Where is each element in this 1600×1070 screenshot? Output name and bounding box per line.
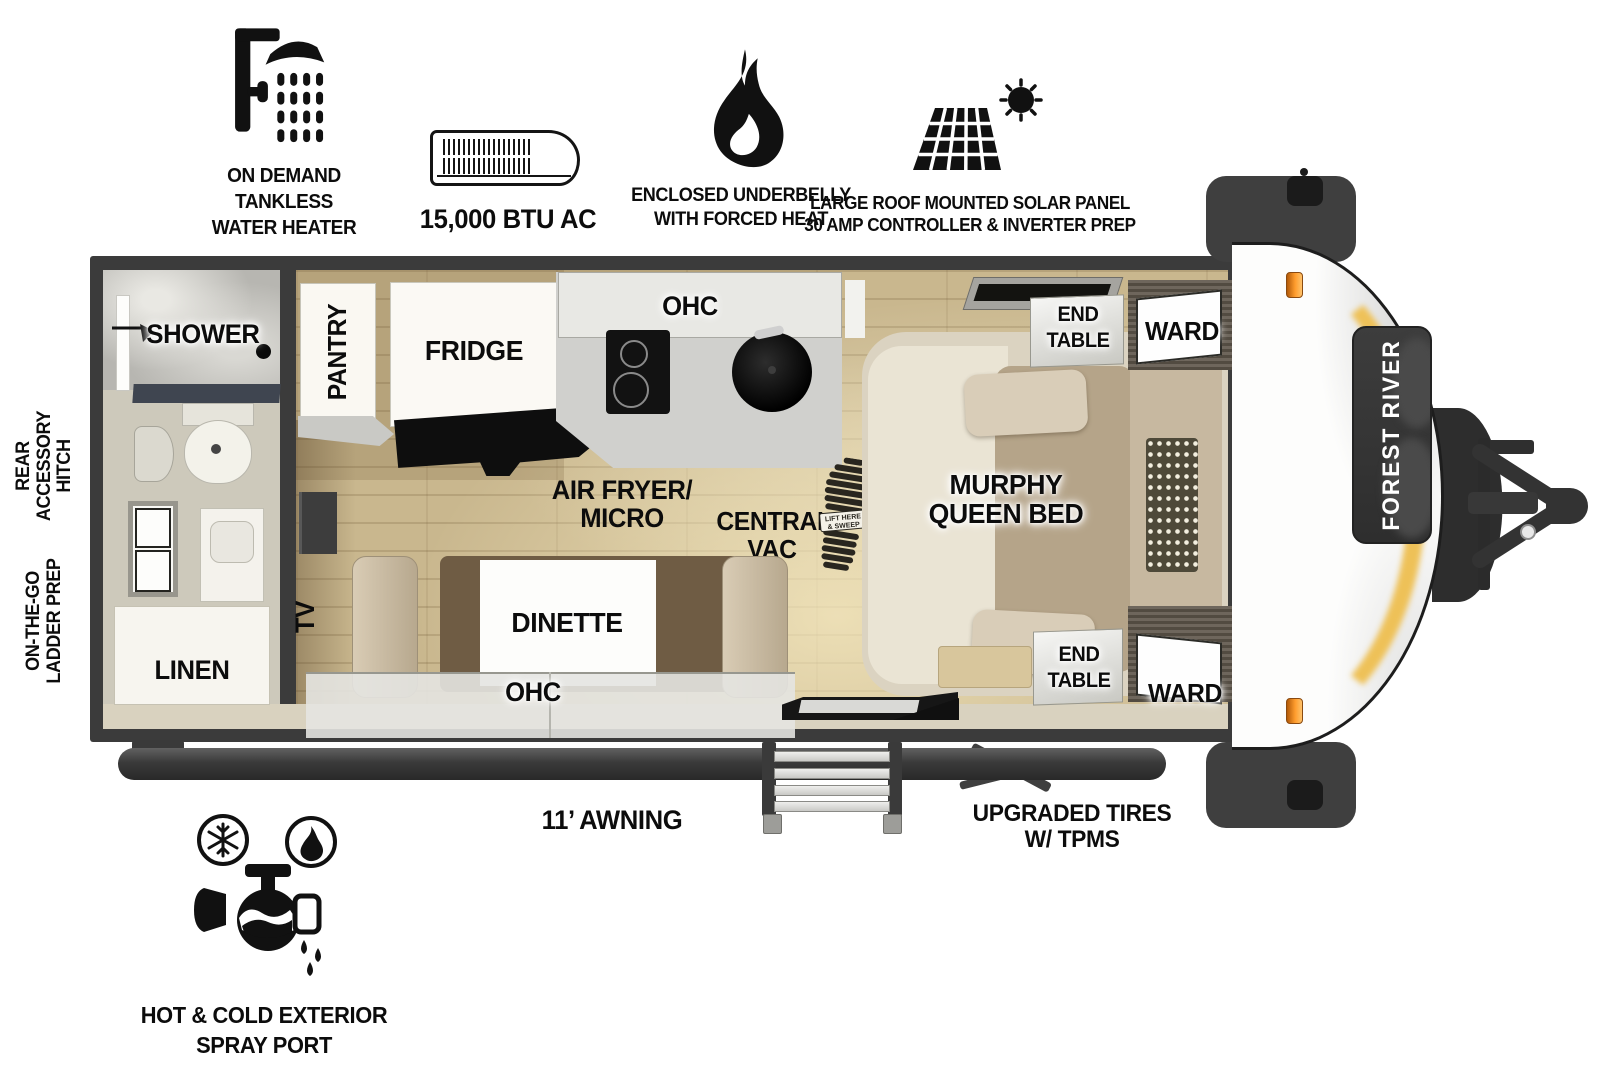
shower-label: SHOWER bbox=[146, 320, 259, 348]
dinette-ohc-label: OHC bbox=[505, 678, 561, 706]
spray-port-label-line2: SPRAY PORT bbox=[196, 1034, 332, 1058]
brand-label: FOREST RIVER bbox=[1377, 326, 1407, 545]
solar-caption-line1: LARGE ROOF MOUNTED SOLAR PANEL bbox=[810, 194, 1130, 213]
feature-ac bbox=[430, 130, 586, 192]
murphy-bed-label-line2: QUEEN BED bbox=[929, 499, 1084, 528]
floorplan-canvas: ON DEMAND TANKLESS WATER HEATER 15,000 B… bbox=[0, 0, 1600, 1070]
kitchen-ohc-label: OHC bbox=[662, 292, 718, 320]
sink-drain bbox=[768, 366, 776, 374]
flame-small-icon bbox=[301, 826, 324, 861]
linen-label: LINEN bbox=[154, 656, 229, 684]
wardrobe-bottom-label: WARD bbox=[1148, 680, 1222, 707]
end-table-bottom-label-line1: END bbox=[1059, 644, 1100, 666]
entry-steps bbox=[762, 742, 902, 834]
sofa-armrest-top bbox=[963, 369, 1088, 437]
tv-label: TV bbox=[293, 589, 319, 646]
feature-water-heater bbox=[222, 26, 342, 148]
underbelly-caption-line2: WITH FORCED HEAT bbox=[654, 210, 828, 230]
ac-unit-icon bbox=[430, 130, 580, 186]
ac-caption: 15,000 BTU AC bbox=[420, 205, 597, 233]
feature-solar bbox=[905, 78, 1045, 178]
water-heater-caption-line3: WATER HEATER bbox=[212, 218, 357, 239]
bed-step bbox=[938, 646, 1032, 688]
burner-small bbox=[620, 340, 648, 368]
front-cap-knob-top bbox=[1287, 176, 1323, 206]
marker-light-bottom bbox=[1286, 698, 1303, 724]
snowflake-icon bbox=[209, 824, 237, 856]
end-table-bottom bbox=[1033, 628, 1123, 705]
pantry-label: PANTRY bbox=[323, 286, 351, 419]
feature-underbelly bbox=[700, 44, 788, 178]
shower-glass-panel bbox=[132, 384, 280, 403]
water-heater-caption-line1: ON DEMAND bbox=[227, 166, 341, 187]
checkered-throw bbox=[1146, 438, 1198, 572]
rear-accessory-hitch-label: REAR ACCESSORY HITCH bbox=[14, 402, 76, 529]
wardrobe-top-label: WARD bbox=[1145, 318, 1219, 345]
fridge-label: FRIDGE bbox=[425, 336, 523, 365]
counter-end-panel bbox=[845, 280, 865, 338]
hitch-assembly bbox=[1428, 380, 1600, 630]
tv-wall-shade bbox=[296, 420, 356, 704]
awning-label: 11’ AWNING bbox=[542, 806, 683, 834]
spray-port-icon bbox=[192, 812, 342, 984]
spray-port-label-line1: HOT & COLD EXTERIOR bbox=[141, 1004, 387, 1028]
bathroom-sink bbox=[200, 508, 264, 602]
svg-text:& SWEEP: & SWEEP bbox=[827, 521, 860, 531]
flame-icon bbox=[700, 44, 788, 178]
tires-label-line2: W/ TPMS bbox=[1025, 828, 1120, 853]
tv-screen bbox=[299, 492, 337, 554]
solar-panel-icon bbox=[905, 78, 1045, 178]
end-table-top-label-line1: END bbox=[1058, 304, 1099, 326]
toilet-flush-button bbox=[211, 444, 221, 454]
dinette-label: DINETTE bbox=[511, 608, 622, 637]
bathroom-window bbox=[128, 501, 178, 597]
solar-caption-line2: 30 AMP CONTROLLER & INVERTER PREP bbox=[804, 216, 1135, 235]
bath-shelf bbox=[134, 426, 174, 482]
murphy-bed-label-line1: MURPHY bbox=[949, 470, 1062, 499]
tires-label-line1: UPGRADED TIRES bbox=[973, 802, 1172, 827]
antenna-dot-top bbox=[1300, 168, 1308, 176]
water-heater-caption-line2: TANKLESS bbox=[235, 192, 333, 213]
end-table-bottom-label-line2: TABLE bbox=[1047, 670, 1110, 692]
air-fryer-label-line1: AIR FRYER/ bbox=[552, 476, 693, 504]
awning-roller bbox=[118, 748, 1166, 780]
front-corner-cap-bottom bbox=[1206, 742, 1356, 828]
tankless-water-heater-icon bbox=[222, 26, 342, 148]
ladder-prep-label: ON-THE-GO LADDER PREP bbox=[23, 554, 67, 689]
air-fryer-label-line2: MICRO bbox=[580, 504, 664, 532]
end-table-top-label-line2: TABLE bbox=[1046, 330, 1109, 352]
front-cap-knob-bottom bbox=[1287, 780, 1323, 810]
burner-large bbox=[613, 372, 649, 408]
marker-light-top bbox=[1286, 272, 1303, 298]
entry-door-step bbox=[799, 700, 920, 713]
